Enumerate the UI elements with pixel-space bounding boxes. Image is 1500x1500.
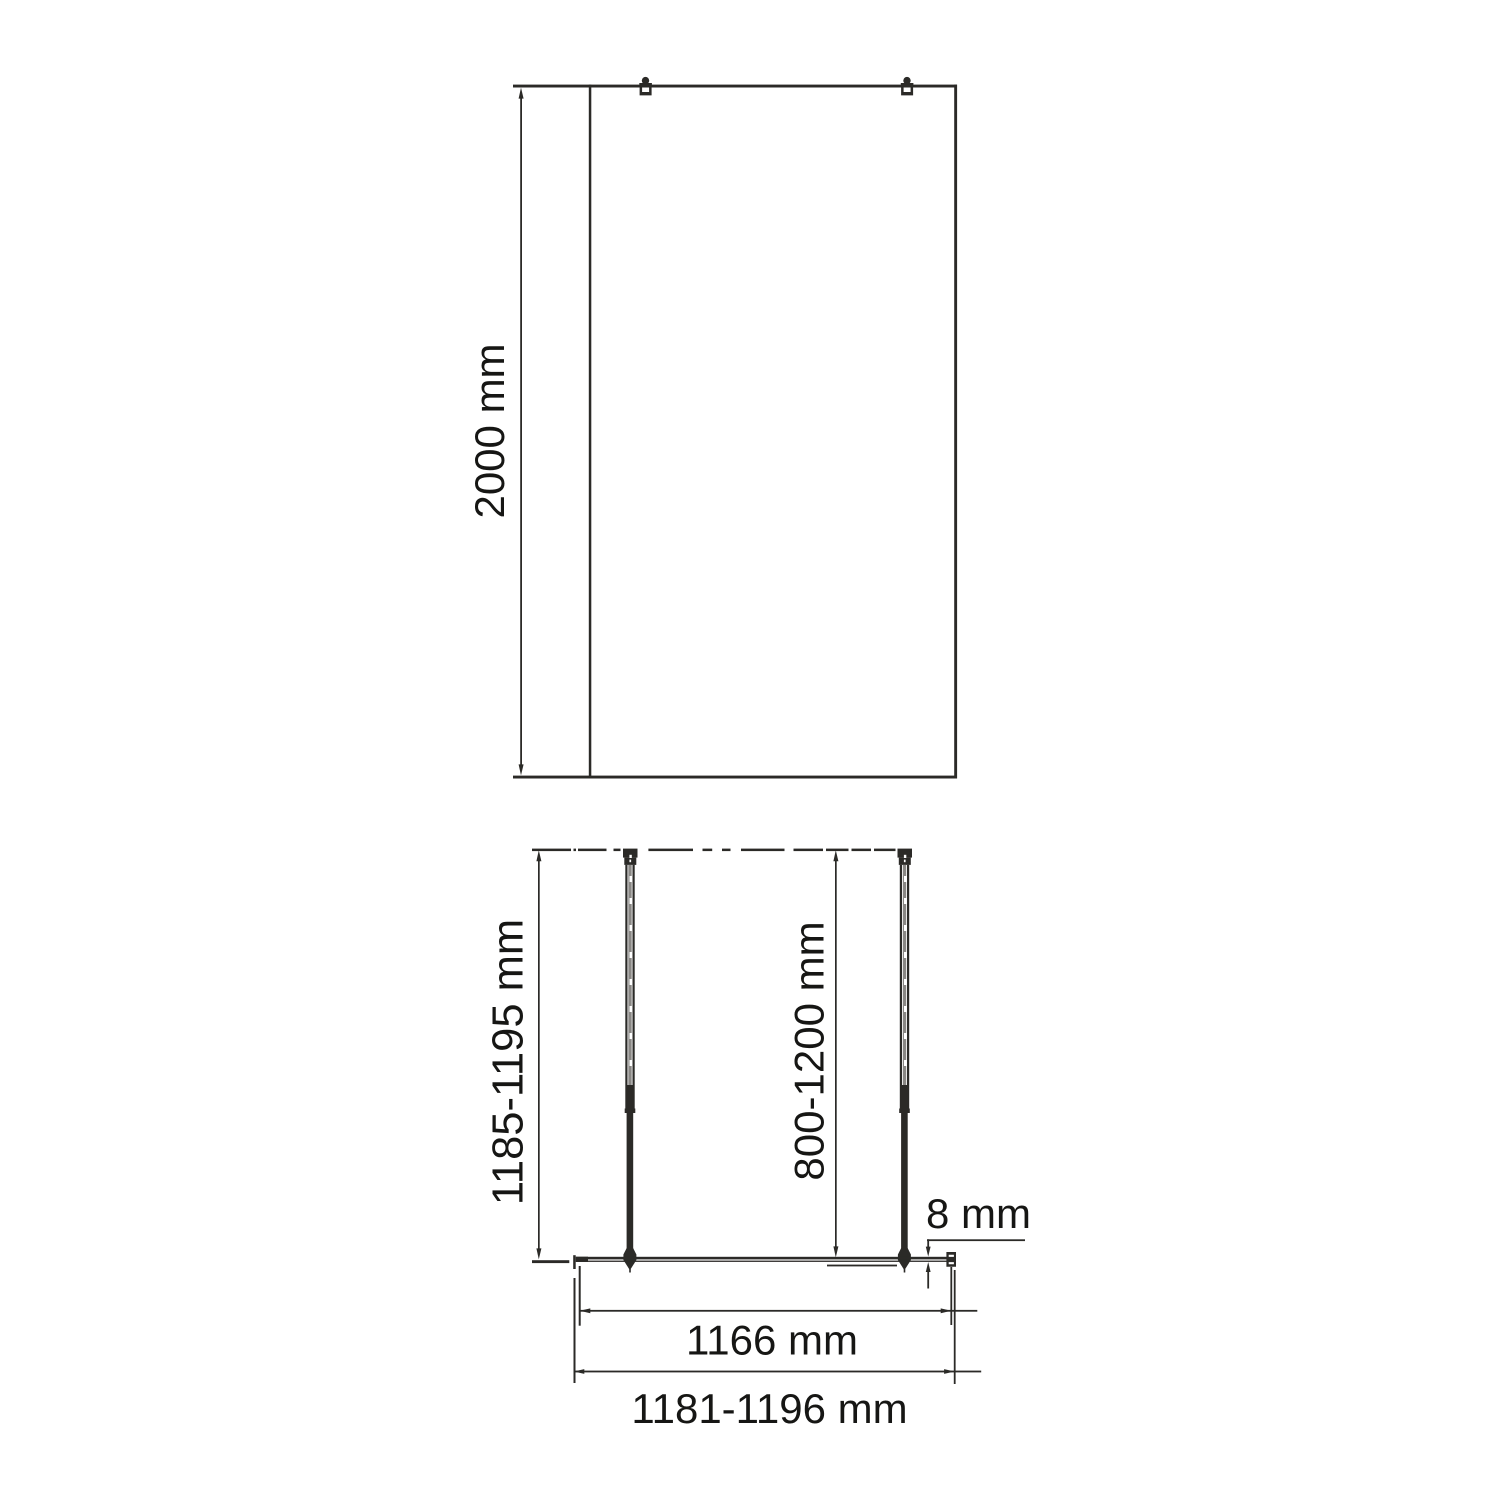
svg-text:800-1200 mm: 800-1200 mm <box>786 921 833 1180</box>
svg-text:1181-1196 mm: 1181-1196 mm <box>631 1385 907 1432</box>
svg-text:8 mm: 8 mm <box>926 1190 1031 1237</box>
svg-text:1166 mm: 1166 mm <box>686 1317 858 1364</box>
svg-text:1185-1195 mm: 1185-1195 mm <box>485 919 533 1205</box>
svg-text:2000 mm: 2000 mm <box>466 343 513 518</box>
